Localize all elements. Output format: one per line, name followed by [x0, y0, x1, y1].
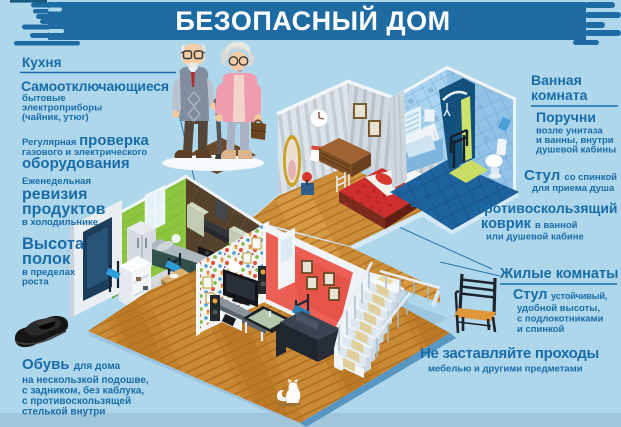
svg-text:душевой кабины: душевой кабины [536, 145, 616, 156]
svg-text:БЕЗОПАСНЫЙ ДОМ: БЕЗОПАСНЫЙ ДОМ [175, 5, 450, 36]
svg-text:оборудования: оборудования [22, 155, 130, 172]
svg-text:с подлокотниками: с подлокотниками [517, 314, 604, 325]
svg-text:и спинкой: и спинкой [517, 324, 565, 335]
svg-text:или душевой кабине: или душевой кабине [486, 232, 584, 243]
svg-text:в холодильнике: в холодильнике [22, 217, 98, 228]
svg-text:Поручни: Поручни [536, 109, 596, 125]
svg-text:мебелью и другими предметами: мебелью и другими предметами [428, 364, 583, 375]
svg-text:полок: полок [22, 250, 71, 268]
svg-text:комната: комната [531, 87, 588, 103]
svg-text:Противоскользящий: Противоскользящий [474, 200, 618, 216]
svg-text:Самоотключающиеся: Самоотключающиеся [21, 78, 169, 94]
svg-text:продуктов: продуктов [22, 201, 106, 218]
svg-text:(чайник, утюг): (чайник, утюг) [22, 112, 89, 123]
svg-text:роста: роста [22, 277, 49, 288]
svg-text:Жилые комнаты: Жилые комнаты [499, 266, 618, 282]
svg-text:с задником, без каблука,: с задником, без каблука, [22, 385, 144, 397]
svg-text:удобной высоты,: удобной высоты, [517, 303, 600, 314]
svg-text:с противоскользящей: с противоскользящей [22, 396, 131, 407]
svg-text:Кухня: Кухня [22, 55, 61, 70]
svg-text:Не заставляйте проходы: Не заставляйте проходы [420, 345, 599, 362]
svg-text:стелькой внутри: стелькой внутри [22, 407, 105, 418]
svg-text:Ванная: Ванная [531, 72, 582, 88]
svg-text:для приема душа: для приема душа [532, 183, 615, 194]
svg-text:на нескользкой подошве,: на нескользкой подошве, [22, 375, 149, 386]
